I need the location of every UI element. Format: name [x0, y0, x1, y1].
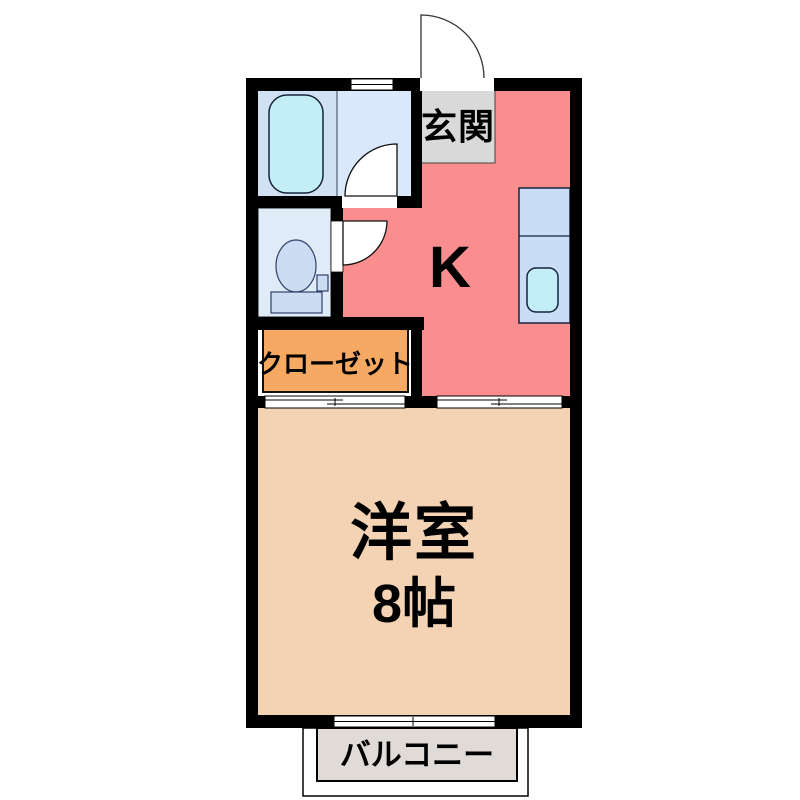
- main-room-size-label: 8帖: [372, 577, 456, 631]
- closet-sliding-door: [265, 396, 405, 408]
- balcony-label: バルコニー: [340, 740, 494, 771]
- entrance-door-swing: [421, 15, 484, 78]
- floor-plan-drawing: [0, 0, 800, 800]
- main-room-window: [334, 716, 495, 727]
- bathtub: [269, 95, 323, 193]
- kitchen-label: K: [429, 239, 471, 297]
- wall-toilet-bottom: [246, 317, 424, 330]
- bathroom-door-opening: [342, 196, 397, 208]
- toilet-tank: [271, 292, 322, 313]
- genkan-label: 玄関: [421, 109, 495, 145]
- closet-label: クローゼット: [257, 351, 413, 377]
- bathroom-window: [351, 79, 393, 90]
- toilet-side-box: [317, 275, 328, 291]
- toilet-bowl: [276, 240, 316, 292]
- entrance-opening: [420, 78, 494, 91]
- kitchen-sink: [527, 268, 558, 312]
- floor-plan: 玄関 K クローゼット 洋室 8帖 バルコニー: [0, 0, 800, 800]
- toilet-door-leaf: [331, 221, 343, 272]
- kitchen-counter-unit: [519, 188, 570, 323]
- main-room-name-label: 洋室: [350, 503, 478, 565]
- kitchen-sliding-door: [437, 396, 562, 408]
